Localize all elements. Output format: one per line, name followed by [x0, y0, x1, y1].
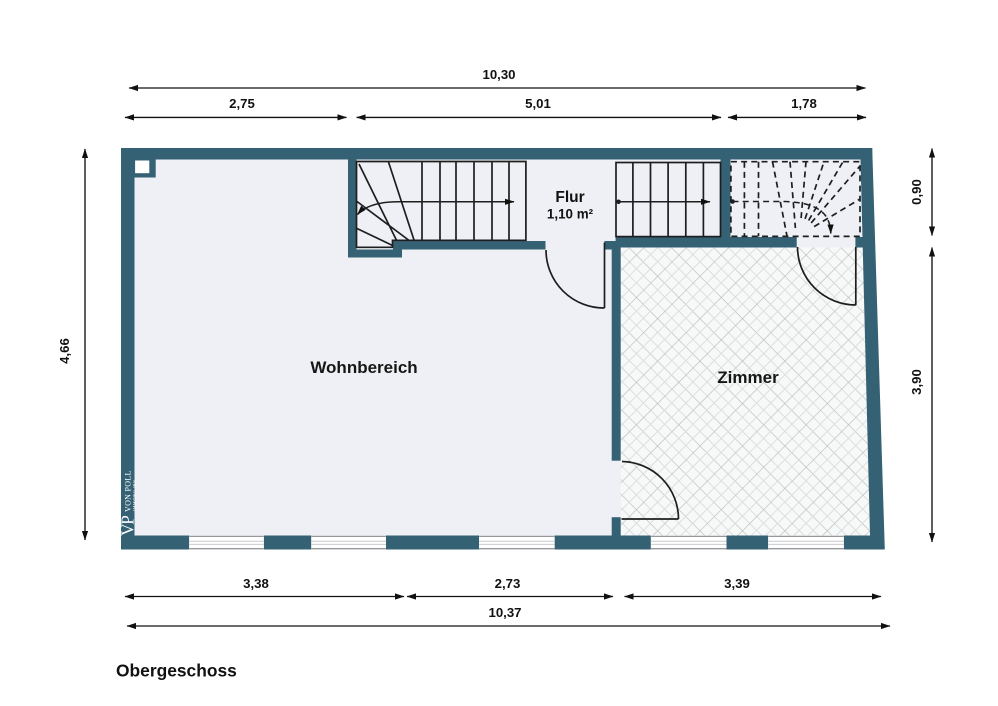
svg-text:3,38: 3,38 — [243, 576, 269, 591]
svg-text:Flur: Flur — [555, 189, 584, 206]
svg-text:Wohnbereich: Wohnbereich — [310, 358, 417, 377]
svg-text:1,10 m²: 1,10 m² — [547, 207, 594, 222]
svg-text:VON POLL: VON POLL — [123, 470, 132, 512]
svg-text:VP: VP — [118, 515, 138, 536]
svg-text:10,37: 10,37 — [488, 605, 521, 620]
svg-text:1,78: 1,78 — [791, 96, 817, 111]
svg-text:Obergeschoss: Obergeschoss — [116, 661, 237, 681]
svg-text:3,90: 3,90 — [909, 369, 924, 395]
svg-text:Zimmer: Zimmer — [717, 368, 779, 387]
svg-text:2,75: 2,75 — [229, 96, 255, 111]
svg-text:0,90: 0,90 — [909, 179, 924, 205]
svg-text:4,66: 4,66 — [57, 338, 72, 364]
svg-text:5,01: 5,01 — [525, 96, 551, 111]
svg-text:2,73: 2,73 — [495, 576, 521, 591]
svg-text:IMMOBILIEN: IMMOBILIEN — [132, 479, 137, 511]
svg-text:10,30: 10,30 — [482, 67, 515, 82]
svg-text:3,39: 3,39 — [724, 576, 750, 591]
